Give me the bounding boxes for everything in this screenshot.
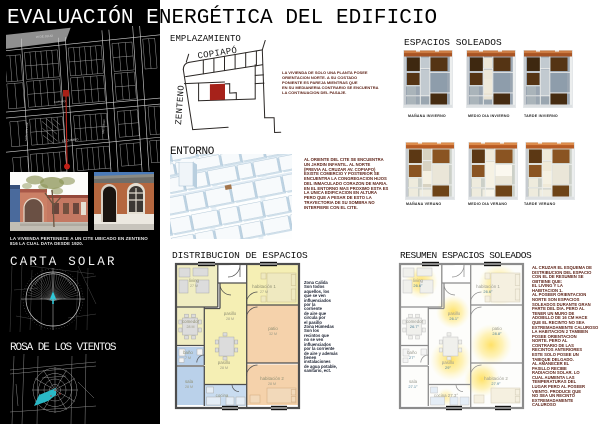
- svg-text:cocina: cocina: [216, 393, 229, 398]
- svg-text:26.7°: 26.7°: [410, 324, 420, 329]
- svg-text:27.1°: 27.1°: [408, 384, 418, 389]
- svg-text:habitación 2: habitación 2: [260, 376, 284, 381]
- svg-text:29°: 29°: [445, 365, 451, 370]
- svg-text:26.6°: 26.6°: [413, 283, 423, 288]
- svg-text:COPIAPÓ: COPIAPÓ: [197, 45, 238, 62]
- svg-text:comedor: comedor: [182, 319, 200, 324]
- svg-text:27.9°: 27.9°: [491, 381, 501, 386]
- svg-text:28 M: 28 M: [187, 325, 195, 329]
- svg-text:32 M: 32 M: [269, 332, 277, 336]
- svg-text:habitación 1: habitación 1: [252, 284, 276, 289]
- svg-text:28 M: 28 M: [268, 382, 276, 386]
- svg-text:patio: patio: [268, 326, 278, 331]
- svg-text:28.8°: 28.8°: [492, 331, 502, 336]
- svg-text:cocina 27.3°: cocina 27.3°: [434, 393, 458, 398]
- svg-text:pasillo: pasillo: [224, 311, 237, 316]
- svg-text:26.1°: 26.1°: [449, 316, 459, 321]
- svg-text:27°: 27°: [409, 355, 415, 360]
- svg-text:ZENTENO: ZENTENO: [175, 85, 187, 126]
- svg-text:27 M: 27 M: [190, 284, 198, 288]
- svg-text:living: living: [189, 278, 200, 283]
- svg-text:28 M: 28 M: [185, 385, 193, 389]
- svg-text:sala: sala: [185, 379, 194, 384]
- svg-text:26.6°: 26.6°: [483, 289, 493, 294]
- svg-text:7 M: 7 M: [185, 356, 191, 360]
- svg-text:27 M: 27 M: [260, 290, 268, 294]
- svg-text:28 M: 28 M: [226, 317, 234, 321]
- svg-text:pasillo: pasillo: [218, 360, 231, 365]
- svg-text:28 M: 28 M: [220, 366, 228, 370]
- svg-text:baño: baño: [183, 350, 193, 355]
